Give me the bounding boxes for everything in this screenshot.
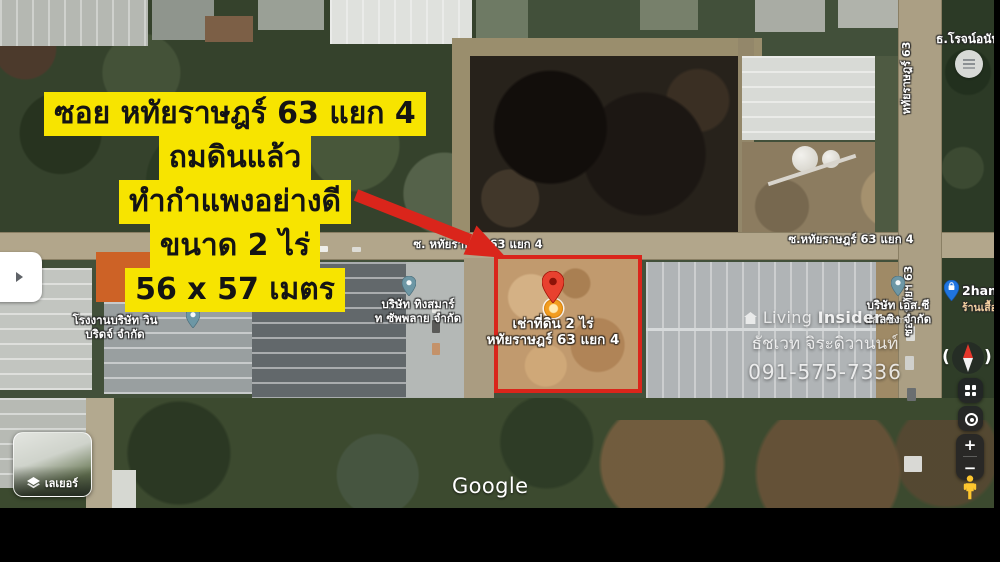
pegman-icon[interactable] [962, 475, 978, 500]
poi-shop-name[interactable]: 2han [962, 283, 994, 298]
google-logo: Google [452, 474, 528, 498]
headline-line: ทำกำแพงอย่างดี [119, 180, 351, 224]
map-patch-building [112, 470, 136, 508]
compass-needle-icon [961, 344, 975, 372]
layers-icon [27, 477, 40, 490]
watermark-brand: Living Insider.com [730, 308, 920, 327]
road-label-left: ซ. หทัยราษฎร์ 63 แยก 4 [398, 236, 558, 254]
map-patch-building [476, 0, 528, 38]
map-patch-building [205, 16, 253, 42]
map-patch-building [0, 0, 148, 46]
poi-circle-icon[interactable] [955, 50, 983, 78]
poi-shop-sub: ร้านเสื้อ [962, 299, 994, 316]
map-patch-vegetation [875, 56, 898, 234]
plot-label-line2: หทัยราษฎร์ 63 แยก 4 [472, 332, 634, 348]
watermark-agent-name: ธัชเวท จิระดิวานนท์ [730, 330, 920, 357]
rotate-right-icon[interactable]: ) [984, 347, 992, 367]
poi-factory-label[interactable]: โรงงานบริษัท วิน บริดจ์ จำกัด [40, 313, 190, 341]
headline-line: ซอย หทัยราษฎร์ 63 แยก 4 [44, 92, 426, 136]
poi-pin-icon[interactable] [891, 276, 905, 296]
brand-suffix: .com [882, 316, 905, 326]
vehicle [432, 343, 440, 355]
grid-icon [965, 385, 976, 396]
plot-pin-icon[interactable] [542, 271, 564, 303]
road-label-right: ซ.หทัยราษฎร์ 63 แยก 4 [772, 231, 930, 249]
vehicle [907, 388, 916, 401]
satellite-map[interactable]: ซ. หทัยราษฎร์ 63 แยก 4 ซ.หทัยราษฎร์ 63 แ… [0, 0, 994, 508]
map-patch-dirt [520, 420, 994, 508]
headline-line: ถมดินแล้ว [159, 136, 312, 180]
poi-factory-line2: บริดจ์ จำกัด [40, 327, 190, 341]
map-patch-building [838, 0, 898, 28]
shop-pin-icon[interactable] [944, 280, 959, 301]
grid-view-button[interactable] [958, 378, 983, 403]
map-patch-burned-field [470, 56, 738, 234]
zoom-in-button[interactable]: + [964, 434, 977, 456]
poi-pin-icon[interactable] [402, 276, 416, 296]
watermark-phone: 091-575-7336 [730, 360, 920, 384]
poi-bank-label[interactable]: ธ.โรจน์อนัน [936, 30, 994, 49]
rotate-left-icon[interactable]: ( [942, 347, 950, 367]
poi-supply-line2: ท ซัพพลาย จำกัด [348, 311, 488, 325]
watermark: Living Insider.com ธัชเวท จิระดิวานนท์ 0… [730, 308, 920, 384]
screenshot-root: ซ. หทัยราษฎร์ 63 แยก 4 ซ.หทัยราษฎร์ 63 แ… [0, 0, 1000, 562]
ad-headline: ซอย หทัยราษฎร์ 63 แยก 4 ถมดินแล้ว ทำกำแพ… [70, 92, 400, 312]
side-panel-toggle[interactable] [0, 252, 42, 302]
brand-light: Living [763, 308, 812, 327]
map-patch-building [755, 0, 825, 32]
map-patch-path [452, 38, 470, 238]
location-dot [970, 418, 974, 422]
map-patch-path [452, 38, 762, 58]
chevron-right-icon [16, 272, 23, 282]
map-patch-building [330, 0, 472, 44]
poi-factory-line1: โรงงานบริษัท วิน [40, 313, 190, 327]
headline-line: 56 x 57 เมตร [125, 268, 345, 312]
headline-line: ขนาด 2 ไร่ [150, 224, 320, 268]
brand-bold: Insider [818, 308, 883, 327]
poi-circle-glyph [963, 59, 975, 61]
plot-label-line1: เช่าที่ดิน 2 ไร่ [472, 316, 634, 332]
map-patch-building [640, 0, 698, 30]
house-icon [744, 312, 757, 324]
zoom-control[interactable]: + − [956, 434, 984, 480]
layers-button[interactable]: เลเยอร์ [13, 432, 92, 497]
plot-label: เช่าที่ดิน 2 ไร่ หทัยราษฎร์ 63 แยก 4 [472, 316, 634, 348]
map-patch-building [258, 0, 324, 30]
layers-label: เลเยอร์ [45, 474, 78, 492]
vehicle [904, 456, 922, 472]
my-location-button[interactable] [958, 406, 983, 431]
road-label-vertical-top: หทัยราษฎร์ 63 [897, 28, 917, 128]
